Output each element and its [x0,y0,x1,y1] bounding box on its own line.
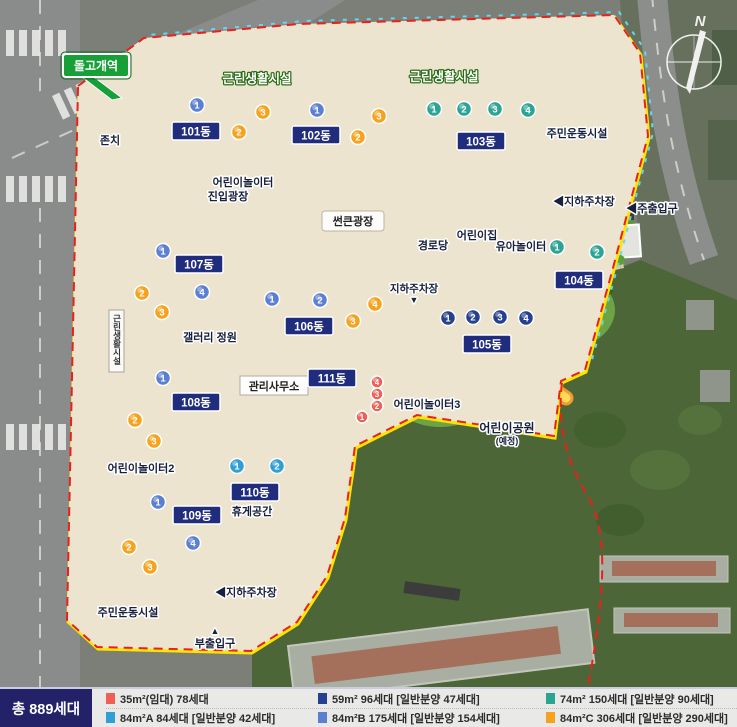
parking-mid-arrow: ▼ [410,295,419,305]
legend-swatch [318,693,327,704]
svg-text:3: 3 [376,111,381,122]
svg-text:1: 1 [155,497,161,508]
unit-line-marker: 3 [371,388,383,400]
svg-text:2: 2 [461,104,466,115]
unit-line-marker: 4 [195,285,210,300]
unit-line-marker: 1 [441,311,456,326]
entry-plaza-label: 진입광장 [208,189,248,203]
sunken-plaza-label: 썬큰광장 [322,211,384,231]
unit-line-marker: 1 [427,102,442,117]
unit-line-marker: 2 [232,125,247,140]
station-label: 돌고개역 [74,58,118,73]
retail-label-2: 근린생활시설 [409,69,478,84]
building-label-104동: 104동 [555,271,603,289]
unit-line-marker: 1 [190,98,205,113]
unit-line-marker: 2 [135,286,150,301]
svg-text:3: 3 [260,107,265,118]
legend-item: 84m²A 84세대 [일반분양 42세대] [106,710,318,726]
unit-line-marker: 3 [155,305,170,320]
unit-line-marker: 2 [313,293,328,308]
parking-bottom-label: ◀지하주차장 [215,585,277,599]
svg-text:2: 2 [274,461,279,472]
unit-line-marker: 3 [493,310,508,325]
building-label-101동: 101동 [172,122,220,140]
unit-line-marker: 4 [371,376,383,388]
svg-text:111동: 111동 [318,373,347,386]
unit-line-marker: 2 [457,102,472,117]
sports-top-label: 주민운동시설 [547,126,608,140]
unit-line-marker: 1 [310,103,325,118]
legend-item: 84m²C 306세대 [일반분양 290세대] [546,710,728,726]
legend-rows: 35m²(임대) 78세대59m² 96세대 [일반분양 47세대]74m² 1… [92,689,737,727]
svg-text:2: 2 [375,402,380,411]
sub-gate-label: 부출입구 [195,636,235,650]
preserved-label: 존치 [100,133,120,147]
unit-line-marker: 1 [156,371,171,386]
svg-text:104동: 104동 [564,275,594,288]
legend-text: 84m²A 84세대 [일반분양 42세대] [120,710,275,726]
toddler-play-label: 유아놀이터 [496,239,547,253]
building-label-110동: 110동 [231,483,279,501]
svg-text:1: 1 [431,104,437,115]
parking-mid-label: 지하주차장 [390,282,439,295]
svg-text:4: 4 [199,287,205,298]
legend-row: 35m²(임대) 78세대59m² 96세대 [일반분양 47세대]74m² 1… [106,690,737,708]
svg-text:1: 1 [160,246,166,257]
svg-text:2: 2 [126,542,131,553]
building-label-106동: 106동 [285,317,333,335]
svg-text:2: 2 [317,295,322,306]
gallery-garden-label: 갤러리 정원 [183,330,237,344]
legend-text: 84m²B 175세대 [일반분양 154세대] [332,710,500,726]
rest-area-label: 휴게공간 [232,504,272,518]
building-label-108동: 108동 [172,393,220,411]
unit-line-marker: 3 [372,109,387,124]
playground3-label: 어린이놀이터3 [394,397,461,411]
unit-line-marker: 2 [351,130,366,145]
svg-text:2: 2 [132,415,137,426]
svg-text:1: 1 [554,242,560,253]
unit-line-marker: 1 [151,495,166,510]
svg-text:107동: 107동 [184,259,214,272]
unit-line-marker: 4 [519,311,534,326]
retail-side-vertical: 근린생활시설 [109,310,124,372]
legend-row: 84m²A 84세대 [일반분양 42세대]84m²B 175세대 [일반분양 … [106,708,737,727]
unit-line-marker: 1 [356,411,368,423]
svg-text:2: 2 [139,288,144,299]
svg-text:1: 1 [194,100,200,111]
unit-line-marker: 2 [590,245,605,260]
svg-text:109동: 109동 [182,510,212,523]
legend-text: 35m²(임대) 78세대 [120,691,209,707]
svg-text:3: 3 [159,307,164,318]
svg-text:1: 1 [314,105,320,116]
svg-text:3: 3 [375,390,380,399]
svg-text:1: 1 [360,413,365,422]
retail-label-1: 근린생활시설 [222,71,291,86]
site-plan-map: 근린생활시설 근린생활시설 근린생활시설 진입광장 존치 어린이놀이터 주민운동… [0,0,737,687]
unit-line-marker: 4 [521,103,536,118]
svg-text:3: 3 [497,312,502,323]
unit-line-marker: 1 [230,459,245,474]
legend-total: 총 889세대 [0,689,92,727]
mgmt-office-label: 관리사무소 [240,376,308,395]
senior-center-label: 경로당 [418,238,448,252]
parking-topright-label: ◀지하주차장 [553,194,615,208]
legend-item: 84m²B 175세대 [일반분양 154세대] [318,710,546,726]
svg-text:3: 3 [147,562,152,573]
legend-text: 74m² 150세대 [일반분양 90세대] [560,691,714,707]
svg-text:1: 1 [445,313,451,324]
site-plan-screenshot: 근린생활시설 근린생활시설 근린생활시설 진입광장 존치 어린이놀이터 주민운동… [0,0,737,727]
svg-text:4: 4 [525,105,531,116]
svg-text:관리사무소: 관리사무소 [249,379,300,393]
unit-line-marker: 3 [256,105,271,120]
svg-text:103동: 103동 [466,136,496,149]
legend-text: 59m² 96세대 [일반분양 47세대] [332,691,480,707]
building-label-109동: 109동 [173,506,221,524]
playground1-label: 어린이놀이터 [213,175,274,189]
svg-text:105동: 105동 [472,339,502,352]
svg-text:4: 4 [523,313,529,324]
legend-swatch [318,712,327,723]
legend-item: 59m² 96세대 [일반분양 47세대] [318,691,546,707]
building-label-107동: 107동 [175,255,223,273]
unit-line-marker: 1 [265,292,280,307]
unit-line-marker: 2 [128,413,143,428]
building-label-111동: 111동 [308,369,356,387]
svg-text:썬큰광장: 썬큰광장 [333,214,373,228]
legend-bar: 총 889세대 35m²(임대) 78세대59m² 96세대 [일반분양 47세… [0,687,737,727]
svg-text:2: 2 [236,127,241,138]
svg-text:1: 1 [269,294,275,305]
playground2-label: 어린이놀이터2 [108,461,175,475]
legend-text: 84m²C 306세대 [일반분양 290세대] [560,710,728,726]
unit-line-marker: 1 [550,240,565,255]
legend-swatch [546,693,555,704]
svg-text:2: 2 [355,132,360,143]
legend-item: 35m²(임대) 78세대 [106,691,318,707]
svg-text:근린생활시설: 근린생활시설 [112,314,122,366]
unit-line-marker: 2 [466,310,481,325]
building-label-103동: 103동 [457,132,505,150]
children-park-note: (예정) [496,435,519,446]
daycare-label: 어린이집 [457,228,497,242]
svg-text:101동: 101동 [181,126,211,139]
unit-line-marker: 4 [186,536,201,551]
svg-text:110동: 110동 [240,487,270,500]
svg-text:102동: 102동 [301,130,331,143]
unit-line-marker: 2 [122,540,137,555]
svg-text:3: 3 [350,316,355,327]
main-gate-label: ◀주출입구 [626,201,677,215]
svg-text:3: 3 [151,436,156,447]
unit-line-marker: 3 [346,314,361,329]
svg-text:108동: 108동 [181,397,211,410]
unit-line-marker: 2 [371,400,383,412]
svg-text:4: 4 [372,299,378,310]
compass-n-label: N [695,13,707,30]
legend-swatch [106,693,115,704]
svg-text:1: 1 [234,461,240,472]
sub-gate-arrow: ▲ [211,626,220,636]
unit-line-marker: 4 [368,297,383,312]
legend-swatch [106,712,115,723]
legend-swatch [546,712,555,723]
unit-line-marker: 3 [143,560,158,575]
unit-line-marker: 3 [488,102,503,117]
children-park-label: 어린이공원 [479,420,534,435]
sports-bottom-label: 주민운동시설 [98,605,159,619]
svg-text:4: 4 [190,538,196,549]
svg-text:2: 2 [594,247,599,258]
building-label-105동: 105동 [463,335,511,353]
building-label-102동: 102동 [292,126,340,144]
unit-line-marker: 3 [147,434,162,449]
legend-item: 74m² 150세대 [일반분양 90세대] [546,691,714,707]
svg-text:2: 2 [470,312,475,323]
svg-text:3: 3 [492,104,497,115]
svg-text:106동: 106동 [294,321,324,334]
unit-line-marker: 2 [270,459,285,474]
svg-text:1: 1 [160,373,166,384]
svg-text:4: 4 [375,378,380,387]
unit-line-marker: 1 [156,244,171,259]
